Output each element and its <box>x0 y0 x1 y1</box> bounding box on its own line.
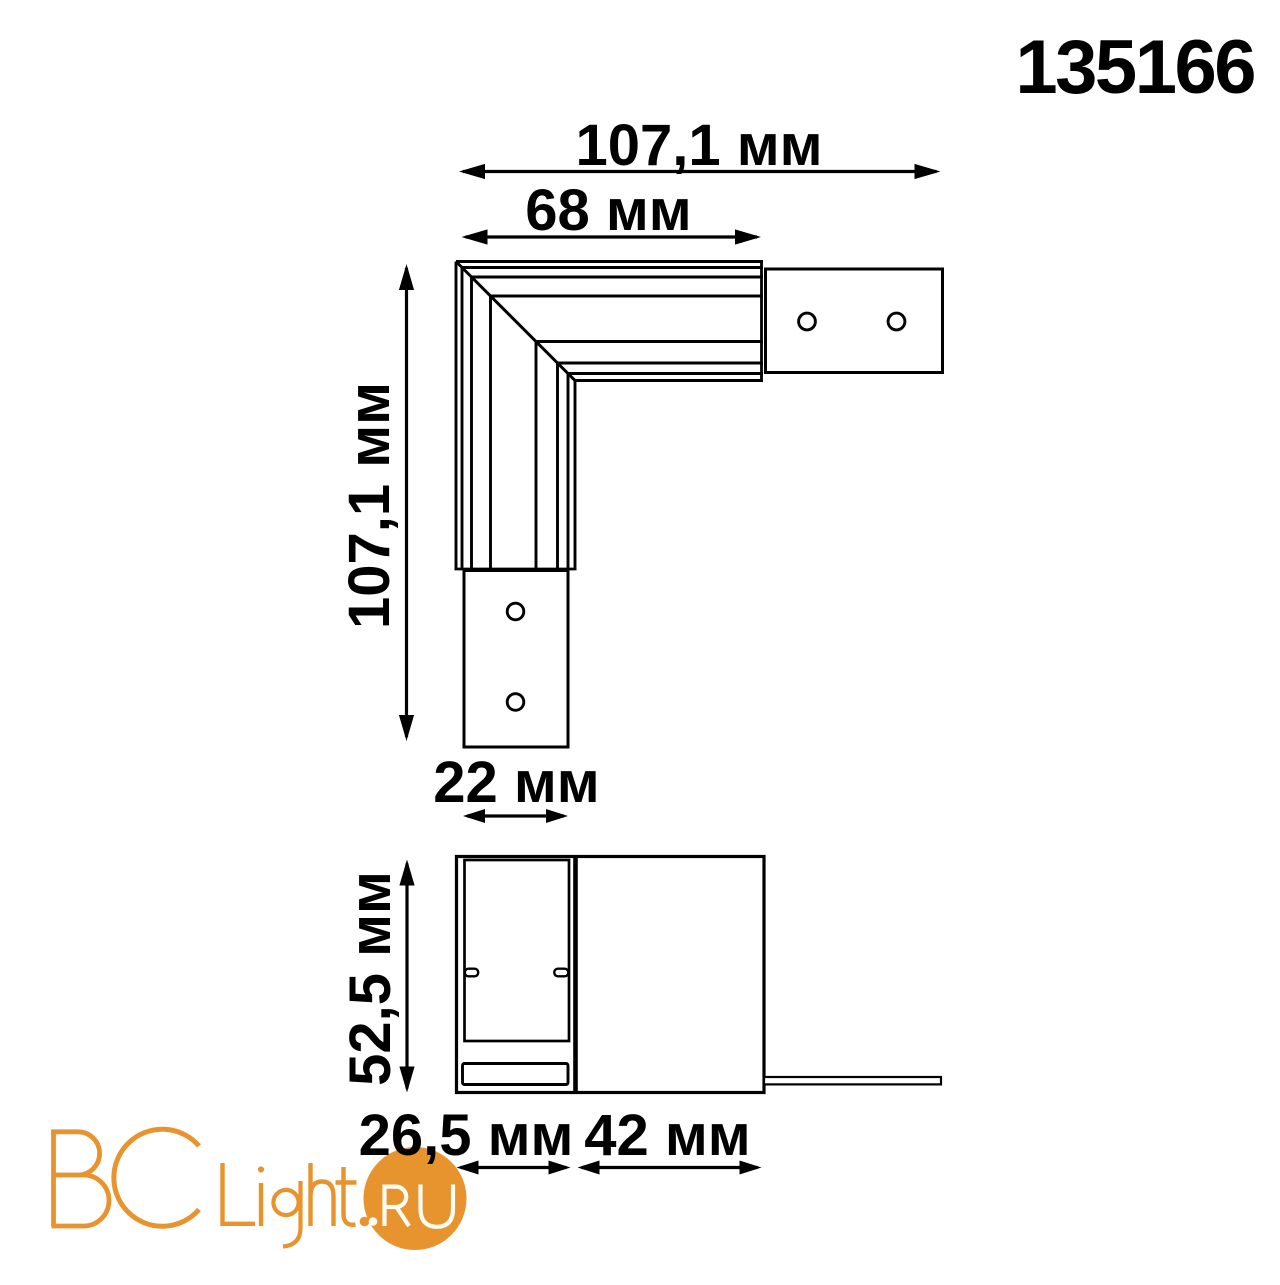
svg-text:135166: 135166 <box>1015 25 1254 110</box>
svg-text:68 мм: 68 мм <box>525 178 691 243</box>
svg-text:52,5 мм: 52,5 мм <box>338 871 403 1086</box>
svg-text:107,1 мм: 107,1 мм <box>575 113 822 178</box>
svg-text:107,1 мм: 107,1 мм <box>337 382 402 629</box>
svg-text:42 мм: 42 мм <box>584 1103 750 1168</box>
svg-text:26,5 мм: 26,5 мм <box>359 1103 574 1168</box>
svg-text:22 мм: 22 мм <box>433 750 599 815</box>
